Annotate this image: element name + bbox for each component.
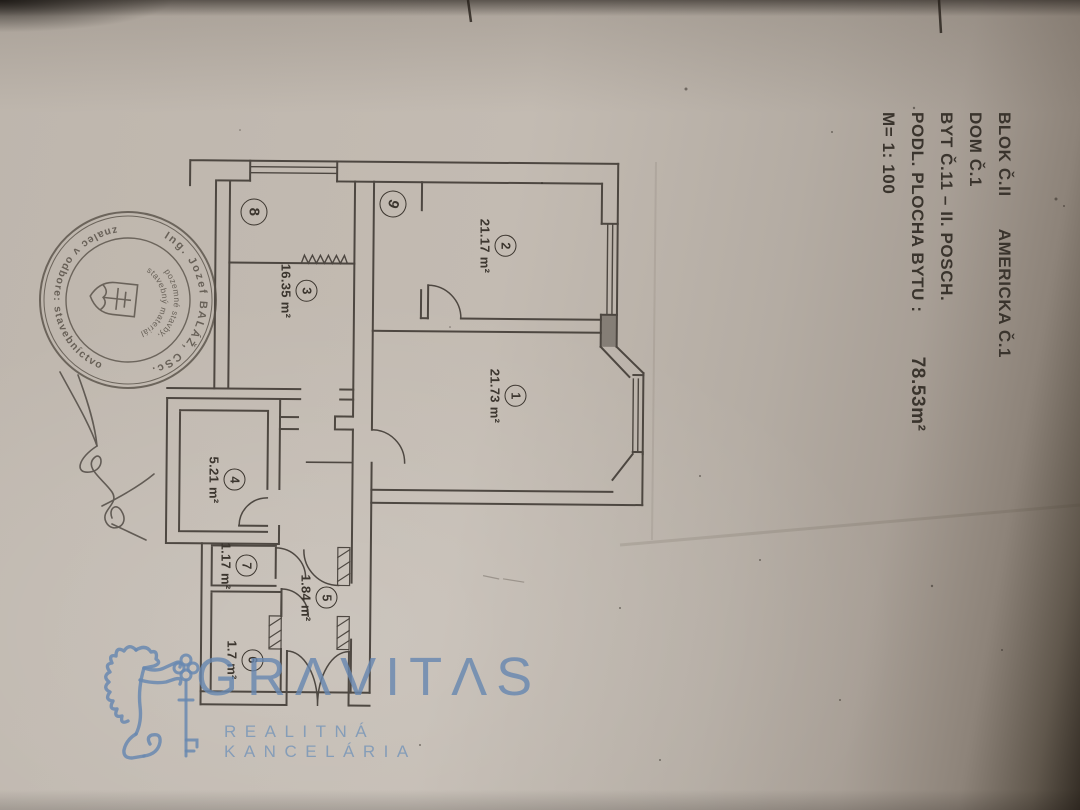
stamp-ring-text-top: Ing. Jozef BALÁŽ, CSc. [148,229,216,382]
photographed-floorplan-document: Ing. Jozef BALÁŽ, CSc. znalec v odbore: … [0,0,1080,810]
coat-of-arms-icon [89,280,138,317]
room-number-3: 3 [296,280,318,302]
room-label-4: 4 5.21 m² [207,457,246,504]
title-line-floor-area: PODL. PLOCHA BYTU :78.53m² [903,112,932,492]
room-number-7: 7 [236,555,258,577]
room-number-2: 2 [495,235,517,257]
floor-area-label: PODL. PLOCHA BYTU : [908,112,927,313]
room-number-1: 1 [505,385,527,407]
room-label-2: 2 21.17 m² [478,219,517,273]
room-number-4: 4 [224,469,246,491]
room-number-5: 5 [316,587,338,609]
title-line-block: BLOK Č.IIAMERICKA Č.1 [990,112,1019,492]
room-label-7: 7 1.17 m² [219,543,258,590]
room-label-3: 3 16.35 m² [279,264,318,318]
room-area-1: 21.73 m² [488,369,503,423]
title-line-house: DOM Č.1 [961,112,990,492]
scale-note: M= 1: 100 [874,112,903,492]
signature [60,372,154,540]
street-name: AMERICKA Č.1 [995,229,1014,358]
title-line-apartment: BYT Č.11 – II. POSCH. [932,112,961,492]
room-number-6: 6 [242,649,264,671]
room-area-6: 1.7 m² [225,640,240,679]
room-area-3: 16.35 m² [279,264,294,318]
floor-area-value: 78.53m² [907,357,928,432]
room-area-4: 5.21 m² [207,457,222,504]
expert-stamp: Ing. Jozef BALÁŽ, CSc. znalec v odbore: … [31,203,224,396]
room-label-6: 6 1.7 m² [225,640,264,679]
room-number-8: 8 [241,199,268,226]
floorplan-walls [165,160,646,708]
block-number: BLOK Č.II [995,112,1014,197]
radiator-symbol [301,255,347,263]
room-area-2: 21.17 m² [478,219,493,273]
room-label-8: 8 [241,199,268,226]
room-label-1: 1 21.73 m² [488,369,527,423]
plan-title-block: BLOK Č.IIAMERICKA Č.1 DOM Č.1 BYT Č.11 –… [874,112,1019,492]
room-area-7: 1.17 m² [219,543,234,590]
room-area-5: 1.84 m² [299,575,314,622]
room-label-5: 5 1.84 m² [299,575,338,622]
